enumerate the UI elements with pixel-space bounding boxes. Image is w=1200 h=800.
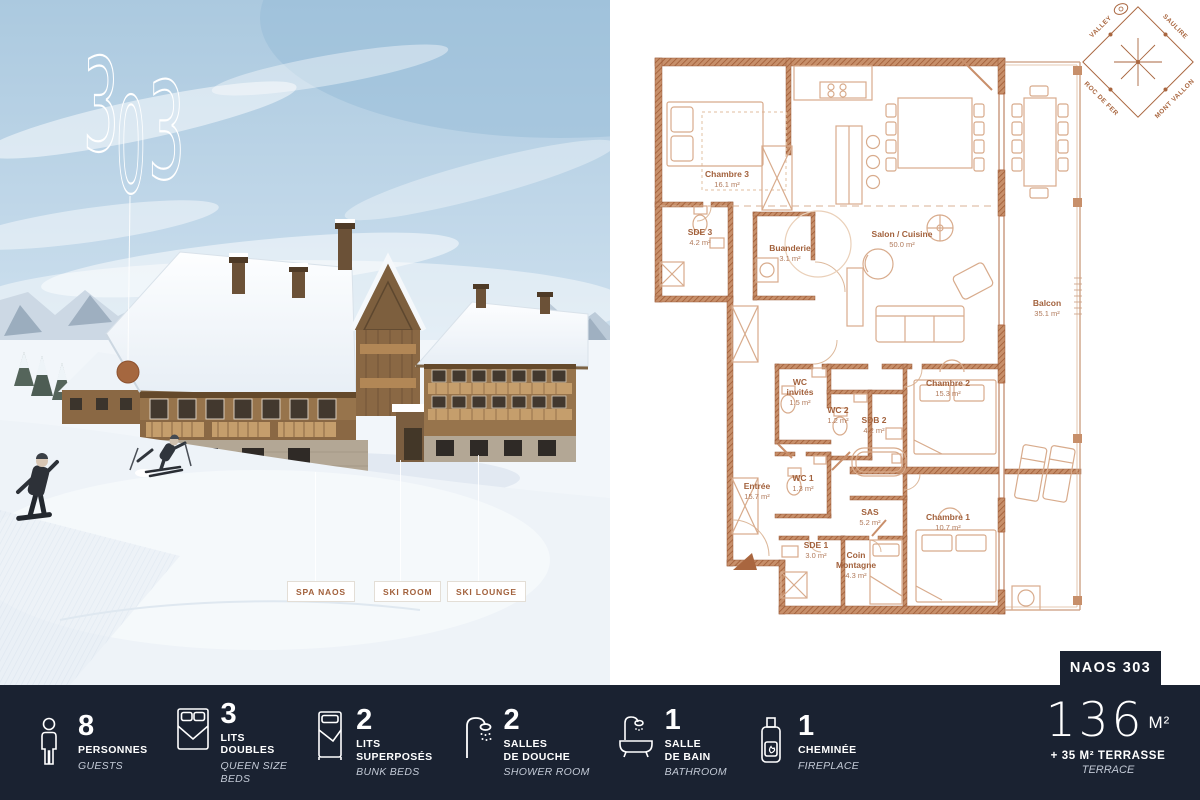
stat-value: 2 [356, 706, 432, 735]
stat-label: PERSONNES [78, 744, 148, 757]
room-label: SAS5.2 m² [844, 508, 896, 527]
balcony-edge [1005, 62, 1082, 610]
chalet-render-photo: 3 0 3 SPA NAOS SKI ROOM SKI LOUNGE [0, 0, 610, 685]
stat-value: 1 [665, 706, 727, 735]
stat-sublabel: GUESTS [78, 760, 148, 773]
stat-bunk-beds: 2 LITS SUPERPOSÉS BUNK BEDS [314, 706, 432, 779]
stat-double-beds: 3 LITS DOUBLES QUEEN SIZE BEDS [175, 700, 288, 785]
bunk-bed-icon [314, 710, 346, 762]
brochure-page: 3 0 3 SPA NAOS SKI ROOM SKI LOUNGE [0, 0, 1200, 800]
tag-ski-room: SKI ROOM [374, 581, 441, 602]
room-label: Chambre 110.7 m² [922, 513, 974, 532]
stat-value: 2 [504, 706, 590, 735]
stat-sublabel: FIREPLACE [798, 760, 859, 773]
shower-icon [460, 710, 494, 762]
room-label: Balcon35.1 m² [1021, 299, 1073, 318]
leader-line-skiroom [400, 460, 401, 581]
stat-sublabel: BUNK BEDS [356, 766, 432, 779]
room-label: Salon / Cuisine50.0 m² [862, 230, 942, 249]
room-label: Entrée15.7 m² [731, 482, 783, 501]
windows-upper [150, 399, 336, 419]
stat-value: 3 [221, 700, 288, 729]
double-bed-icon [175, 704, 211, 756]
stat-sublabel: QUEEN SIZE BEDS [221, 760, 288, 785]
stat-bathroom: 1 SALLE DE BAIN BATHROOM [617, 706, 727, 779]
floor-plan-drawing: VALLEY SAULIRE ROC DE FER MONT VALLON [610, 0, 1200, 685]
room-label: Chambre 316.1 m² [701, 170, 753, 189]
terrace-area-en: TERRACE [1028, 764, 1188, 776]
furniture [660, 66, 1075, 610]
stat-sublabel: SHOWER ROOM [504, 766, 590, 779]
stat-label: LITS DOUBLES [221, 732, 288, 757]
logo-digit-2: 0 [116, 70, 146, 224]
unit-badge: NAOS 303 [1060, 651, 1161, 685]
room-label: SDE 34.2 m² [674, 228, 726, 247]
room-label: SDB 24.2 m² [848, 416, 900, 435]
apartment-area: 136M² + 35 M² TERRASSE TERRACE [1028, 697, 1188, 776]
tag-ski-lounge: SKI LOUNGE [447, 581, 526, 602]
logo-digit-3: 3 [148, 54, 185, 210]
stat-sublabel: BATHROOM [665, 766, 727, 779]
person-icon [38, 716, 68, 768]
room-label: Buanderie3.1 m² [764, 244, 816, 263]
bathtub-icon [617, 710, 655, 762]
room-label: SDE 13.0 m² [790, 541, 842, 560]
compass-label-roc-de-fer: ROC DE FER [1083, 81, 1120, 118]
logo-digit-1: 3 [83, 32, 119, 181]
stat-label: CHEMINÉE [798, 744, 859, 757]
stat-shower-rooms: 2 SALLES DE DOUCHE SHOWER ROOM [460, 706, 590, 779]
floor-plan: VALLEY SAULIRE ROC DE FER MONT VALLON Ch… [610, 0, 1200, 685]
apartment-location-marker [117, 361, 139, 383]
room-label: WC invités1.5 m² [782, 378, 818, 407]
room-label: WC 11.3 m² [777, 474, 829, 493]
leader-line-spa [315, 472, 316, 581]
compass-label-saulire: SAULIRE [1161, 13, 1189, 41]
stat-value: 8 [78, 712, 148, 741]
room-label: Coin Montagne4.3 m² [836, 551, 876, 580]
stat-label: SALLES DE DOUCHE [504, 738, 590, 763]
stat-label: SALLE DE BAIN [665, 738, 727, 763]
compass-label-mont-vallon: MONT VALLON [1154, 78, 1196, 120]
stat-guests: 8 PERSONNES GUESTS [38, 712, 148, 772]
area-unit: M² [1148, 713, 1170, 732]
amenities-bar: 8 PERSONNES GUESTS 3 LITS DOUBLES QUEEN … [0, 685, 1200, 800]
area-value: 136 [1046, 697, 1145, 744]
stat-value: 1 [798, 712, 859, 741]
fireplace-icon [754, 716, 788, 768]
tag-spa-naos: SPA NAOS [287, 581, 355, 602]
walls [655, 58, 1081, 614]
leader-line-skilounge [478, 455, 479, 581]
stat-label: LITS SUPERPOSÉS [356, 738, 432, 763]
compass-rose: VALLEY SAULIRE ROC DE FER MONT VALLON [1083, 2, 1196, 121]
stat-fireplace: 1 CHEMINÉE FIREPLACE [754, 712, 859, 772]
terrace-area-fr: + 35 M² TERRASSE [1028, 750, 1188, 762]
room-label: Chambre 215.3 m² [922, 379, 974, 398]
